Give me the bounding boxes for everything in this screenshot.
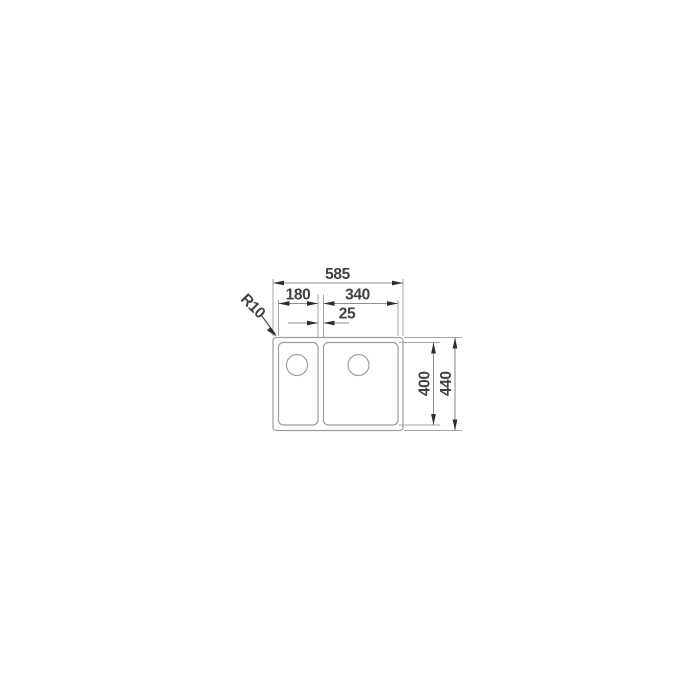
arrowhead-right-icon — [392, 281, 403, 286]
arrowhead-up-icon — [453, 338, 458, 349]
arrowhead-right-icon — [387, 301, 398, 306]
dim-label-r10: R10 — [237, 291, 268, 322]
dimension-overall-width: 585 — [273, 266, 403, 285]
dimension-divider-width: 25 — [288, 306, 356, 326]
left-bowl-drain-hole — [287, 355, 308, 376]
arrowhead-left-icon — [324, 301, 335, 306]
right-bowl-drain-hole — [348, 355, 369, 376]
dim-label-440: 440 — [438, 371, 455, 396]
dimension-inner-depth: 400 — [417, 343, 436, 426]
dimension-left-bowl-width: 180 — [279, 287, 319, 306]
dimension-right-bowl-width: 340 — [324, 287, 399, 306]
arrowhead-down-icon — [453, 420, 458, 431]
dimension-overall-depth: 440 — [438, 338, 457, 431]
arrowhead-left-icon — [324, 321, 335, 326]
dim-label-400: 400 — [417, 371, 434, 396]
sink-outline — [273, 338, 403, 431]
dim-label-180: 180 — [286, 287, 311, 304]
dim-label-585: 585 — [325, 266, 350, 283]
arrowhead-down-icon — [431, 414, 436, 425]
callout-corner-radius: R10 — [237, 291, 276, 337]
arrowhead-right-icon — [307, 321, 318, 326]
arrowhead-left-icon — [273, 281, 284, 286]
sink-technical-drawing: 585 180 340 25 R10 — [0, 0, 700, 700]
arrowhead-up-icon — [431, 343, 436, 354]
dim-label-25: 25 — [339, 306, 356, 323]
drawing-canvas: 585 180 340 25 R10 — [0, 0, 700, 700]
dim-label-340: 340 — [345, 287, 370, 304]
